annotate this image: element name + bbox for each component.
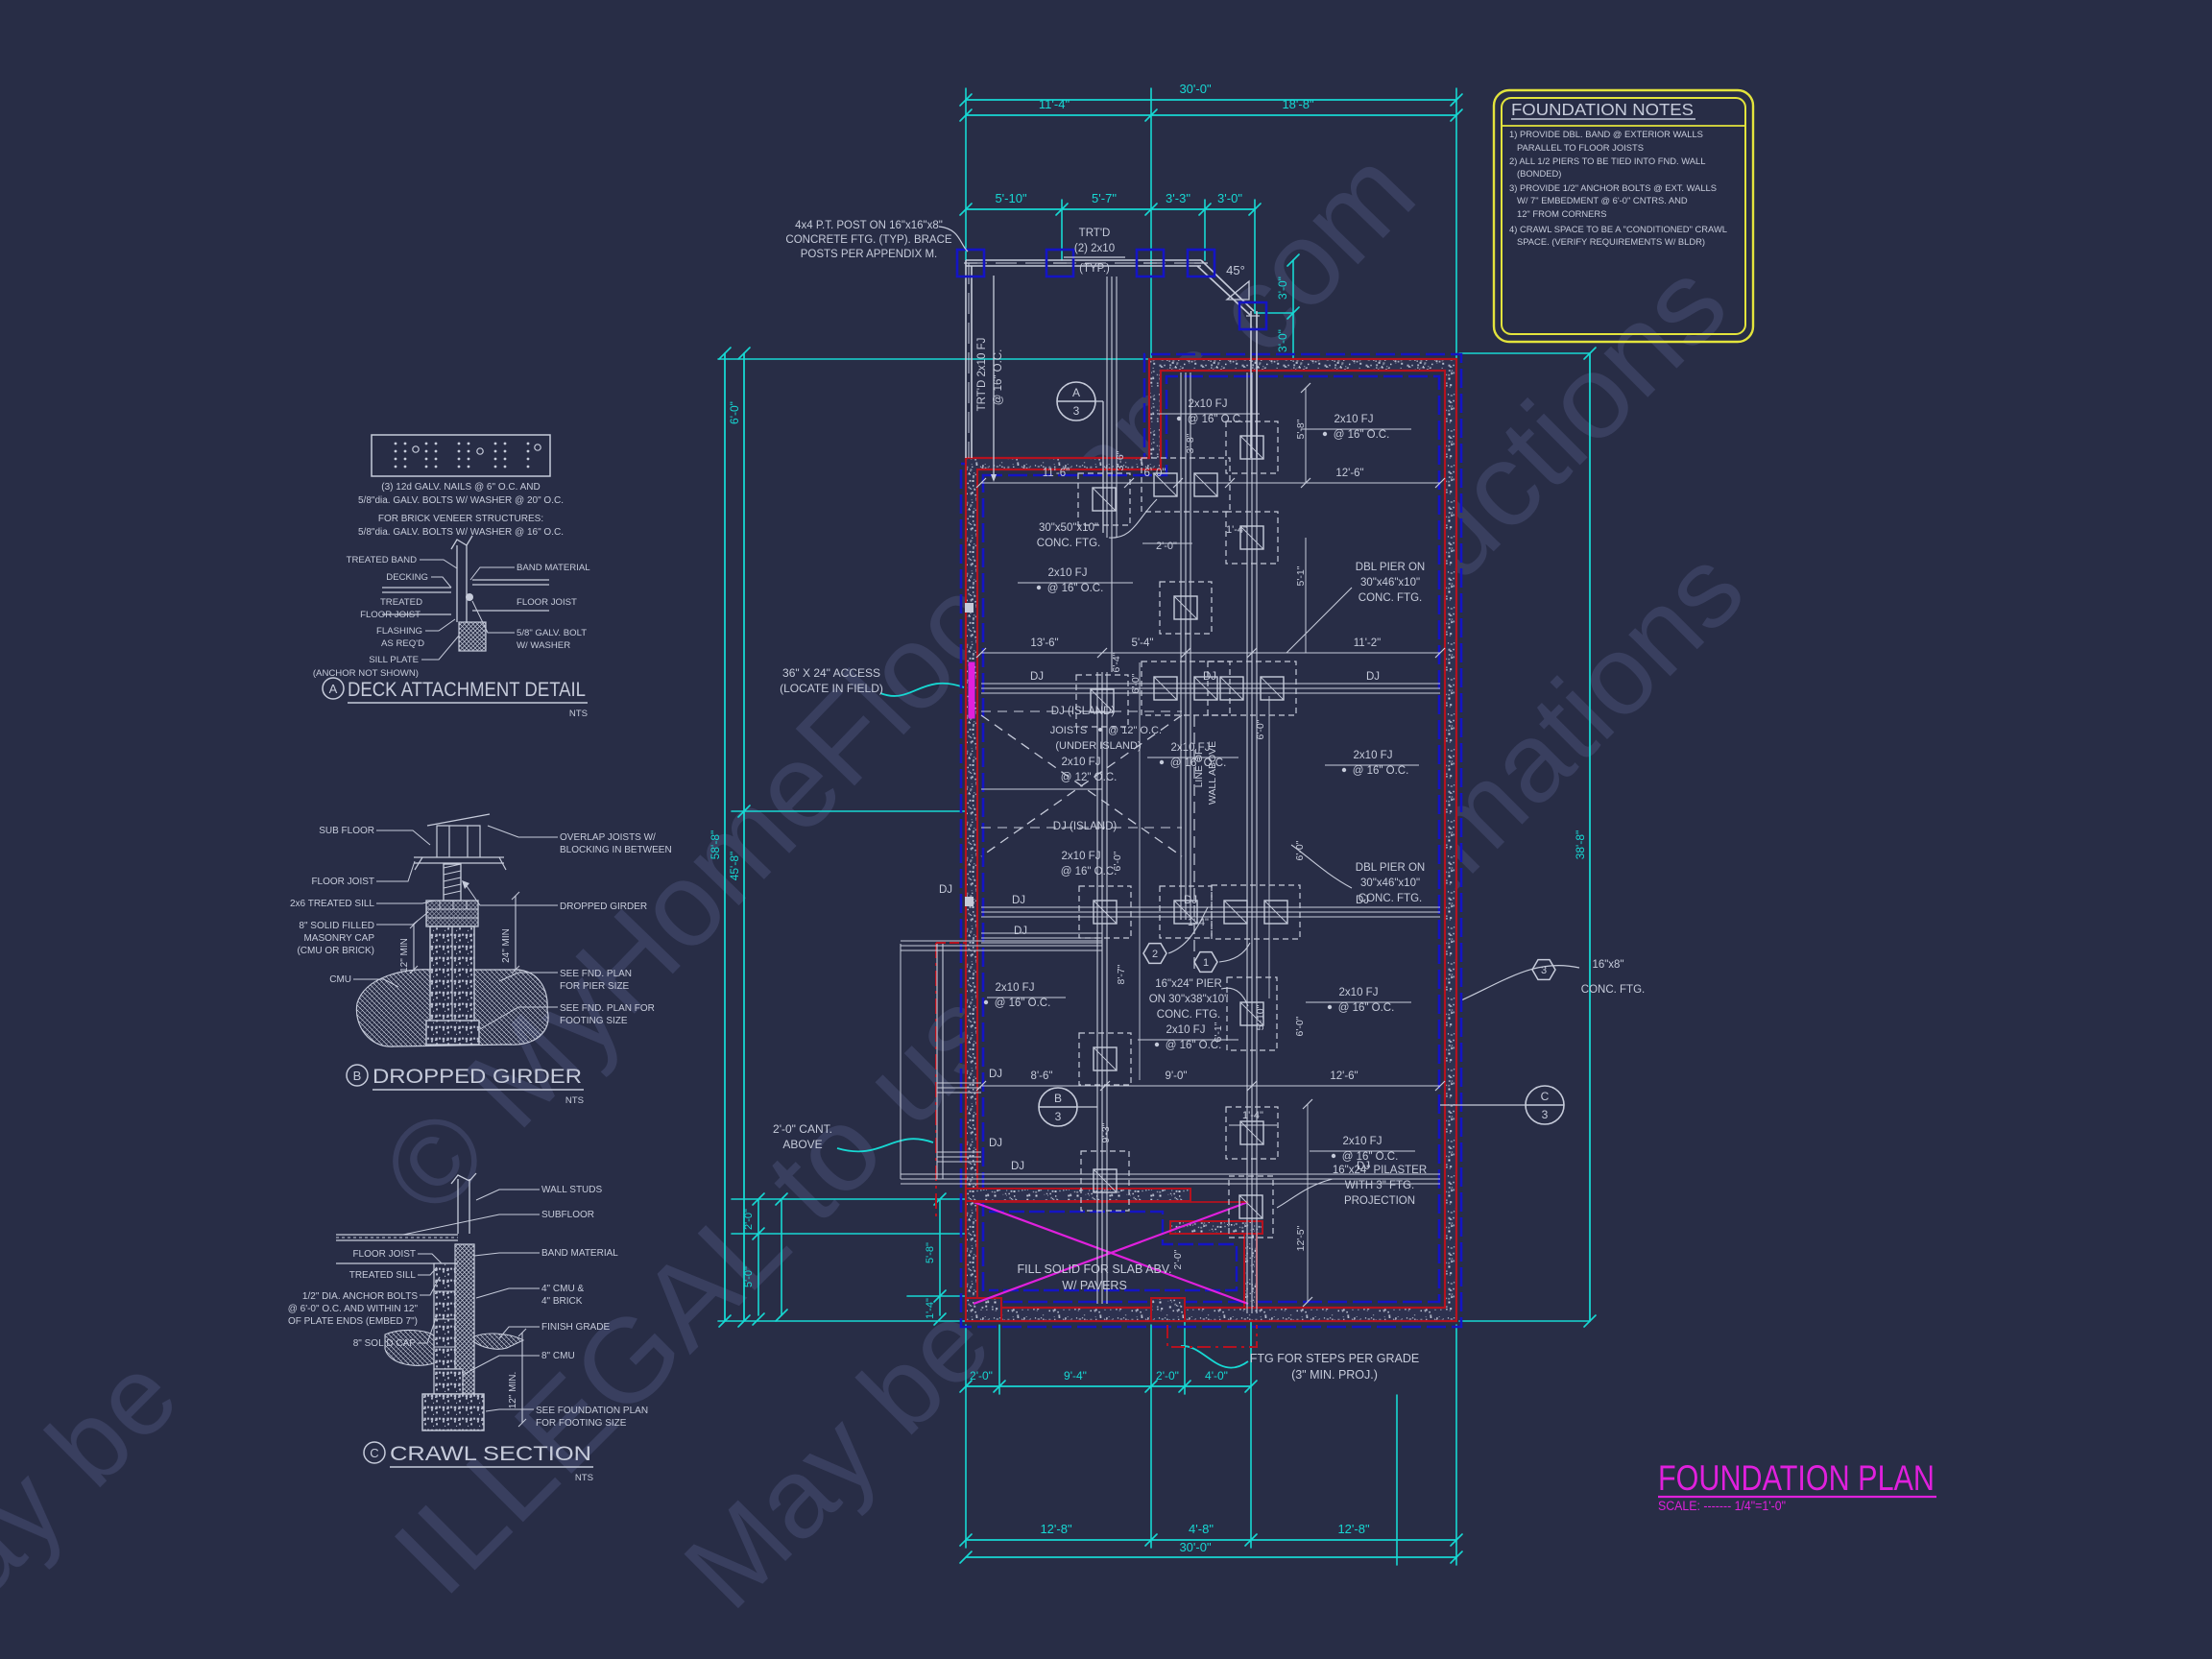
svg-text:2'-0" CANT.: 2'-0" CANT. [773, 1122, 832, 1136]
svg-text:AS REQ'D: AS REQ'D [381, 638, 424, 649]
svg-text:CONC. FTG.: CONC. FTG. [1037, 538, 1100, 549]
svg-text:@ 16" O.C.: @ 16" O.C. [1047, 583, 1104, 594]
svg-text:3: 3 [1073, 404, 1080, 418]
svg-text:FOOTING SIZE: FOOTING SIZE [560, 1016, 628, 1026]
svg-text:3'-8": 3'-8" [1185, 433, 1196, 453]
svg-text:DJ: DJ [989, 1069, 1002, 1080]
svg-text:6'-0": 6'-0" [728, 401, 741, 424]
svg-text:9'-3": 9'-3" [1100, 1122, 1112, 1142]
svg-text:4" BRICK: 4" BRICK [541, 1296, 583, 1307]
svg-text:6'-0": 6'-0" [1294, 840, 1306, 860]
svg-text:2'-0": 2'-0" [1172, 1249, 1184, 1269]
svg-text:4x4 P.T. POST ON 16"x16"x8": 4x4 P.T. POST ON 16"x16"x8" [795, 220, 943, 231]
svg-text:@ 16" O.C.: @ 16" O.C. [1353, 765, 1409, 777]
svg-text:OVERLAP JOISTS W/: OVERLAP JOISTS W/ [560, 832, 656, 843]
svg-text:(UNDER ISLAND): (UNDER ISLAND) [1055, 740, 1141, 752]
svg-text:FLASHING: FLASHING [376, 626, 422, 637]
svg-text:@ 16" O.C.: @ 16" O.C. [1061, 866, 1118, 878]
svg-text:30"x50"x10": 30"x50"x10" [1039, 522, 1098, 534]
svg-text:3'-0": 3'-0" [1276, 276, 1289, 300]
svg-text:5'-1": 5'-1" [1295, 565, 1307, 586]
svg-text:CONCRETE FTG. (TYP). BRACE: CONCRETE FTG. (TYP). BRACE [785, 234, 951, 246]
svg-text:FINISH GRADE: FINISH GRADE [541, 1322, 610, 1333]
svg-text:11'-2": 11'-2" [1354, 637, 1381, 649]
svg-text:3: 3 [1542, 1108, 1549, 1121]
svg-text:FILL SOLID FOR SLAB ABV.: FILL SOLID FOR SLAB ABV. [1018, 1262, 1172, 1276]
svg-text:(3" MIN. PROJ.): (3" MIN. PROJ.) [1291, 1368, 1378, 1382]
svg-text:12'-6": 12'-6" [1335, 468, 1363, 479]
svg-text:58'-8": 58'-8" [709, 830, 722, 860]
svg-text:CONC. FTG.: CONC. FTG. [1358, 592, 1422, 604]
svg-text:5'-10": 5'-10" [995, 191, 1027, 205]
svg-text:A: A [1072, 386, 1080, 399]
svg-text:DJ: DJ [1011, 1161, 1024, 1172]
svg-text:5'-8": 5'-8" [925, 1242, 936, 1263]
svg-text:C: C [370, 1446, 378, 1460]
svg-text:24" MIN: 24" MIN [501, 928, 512, 963]
svg-text:FTG FOR STEPS PER GRADE: FTG FOR STEPS PER GRADE [1250, 1352, 1419, 1365]
svg-text:2x10 FJ: 2x10 FJ [1166, 1024, 1206, 1036]
svg-text:3) PROVIDE 1/2" ANCHOR BOLTS @: 3) PROVIDE 1/2" ANCHOR BOLTS @ EXT. WALL… [1509, 182, 1717, 193]
svg-text:B: B [1054, 1092, 1062, 1105]
svg-text:4'-8": 4'-8" [1189, 1522, 1214, 1536]
svg-text:2x10 FJ: 2x10 FJ [1048, 567, 1088, 579]
svg-text:@ 16" O.C.: @ 16" O.C. [1188, 414, 1244, 425]
svg-text:DJ: DJ [1014, 926, 1027, 937]
svg-text:FOR FOOTING SIZE: FOR FOOTING SIZE [536, 1418, 627, 1429]
svg-text:W/ PAVERS: W/ PAVERS [1062, 1279, 1127, 1292]
svg-text:MASONRY CAP: MASONRY CAP [303, 933, 374, 944]
svg-text:30"x46"x10": 30"x46"x10" [1360, 878, 1420, 889]
svg-text:2x10 FJ: 2x10 FJ [1189, 398, 1228, 410]
svg-text:DJ: DJ [1030, 671, 1044, 683]
svg-text:1'-4": 1'-4" [1226, 524, 1247, 536]
svg-text:TRT'D 2x10 FJ: TRT'D 2x10 FJ [976, 338, 988, 412]
svg-text:(CMU OR BRICK): (CMU OR BRICK) [297, 946, 374, 956]
svg-text:11'-4": 11'-4" [1039, 97, 1070, 111]
svg-text:11'-6": 11'-6" [1043, 468, 1070, 479]
svg-text:CRAWL SECTION: CRAWL SECTION [390, 1443, 591, 1465]
svg-text:SUBFLOOR: SUBFLOOR [541, 1210, 594, 1220]
svg-text:B: B [353, 1069, 362, 1083]
svg-text:12" MIN.: 12" MIN. [508, 1372, 518, 1409]
svg-text:3'-6": 3'-6" [1115, 450, 1126, 470]
svg-text:DJ: DJ [1012, 895, 1025, 906]
svg-text:(2) 2x10: (2) 2x10 [1074, 243, 1115, 254]
svg-text:4" CMU &: 4" CMU & [541, 1284, 584, 1294]
svg-text:DJ: DJ [1366, 671, 1380, 683]
svg-text:DROPPED GIRDER: DROPPED GIRDER [373, 1066, 582, 1088]
svg-text:(BONDED): (BONDED) [1517, 168, 1561, 179]
svg-text:2'-0": 2'-0" [1156, 1369, 1179, 1382]
svg-text:C: C [1541, 1090, 1550, 1103]
svg-text:1: 1 [1203, 957, 1209, 969]
svg-text:ABOVE: ABOVE [782, 1138, 822, 1151]
svg-text:5/8"dia. GALV. BOLTS W/ WASHER: 5/8"dia. GALV. BOLTS W/ WASHER @ 20" O.C… [358, 495, 564, 506]
svg-text:3'-0": 3'-0" [1276, 329, 1289, 352]
svg-text:12'-8": 12'-8" [1337, 1522, 1370, 1536]
svg-text:@ 16" O.C.: @ 16" O.C. [993, 349, 1004, 406]
svg-text:2x10 FJ: 2x10 FJ [1334, 414, 1374, 425]
svg-text:@ 16" O.C.: @ 16" O.C. [995, 998, 1051, 1009]
svg-text:2x6 TREATED SILL: 2x6 TREATED SILL [290, 899, 374, 909]
svg-text:DJ: DJ [939, 884, 952, 896]
svg-text:13'-6": 13'-6" [1030, 637, 1058, 649]
svg-text:1'-4": 1'-4" [1242, 1110, 1263, 1121]
svg-text:FOR BRICK VENEER STRUCTURES:: FOR BRICK VENEER STRUCTURES: [378, 514, 543, 524]
svg-text:30"x46"x10": 30"x46"x10" [1360, 577, 1420, 589]
svg-text:FLOOR JOIST: FLOOR JOIST [360, 610, 421, 620]
svg-text:SPACE. (VERIFY REQUIREMENTS W/: SPACE. (VERIFY REQUIREMENTS W/ BLDR) [1517, 236, 1705, 247]
svg-text:3'-0": 3'-0" [1217, 191, 1242, 205]
svg-text:5'-4": 5'-4" [1132, 637, 1154, 649]
svg-text:2x10 FJ: 2x10 FJ [1062, 851, 1101, 862]
svg-text:6'-4": 6'-4" [1111, 652, 1122, 672]
svg-text:TRT'D: TRT'D [1079, 228, 1111, 239]
svg-text:3'-3": 3'-3" [1166, 191, 1190, 205]
svg-text:16"x24" PIER: 16"x24" PIER [1155, 978, 1222, 990]
svg-text:2x10 FJ: 2x10 FJ [1339, 987, 1379, 998]
svg-text:DECKING: DECKING [386, 572, 428, 583]
svg-text:ON 30"x38"x10": ON 30"x38"x10" [1149, 994, 1229, 1005]
svg-text:8" SOLID FILLED: 8" SOLID FILLED [299, 921, 374, 931]
svg-text:2x10 FJ: 2x10 FJ [1343, 1136, 1382, 1147]
svg-text:9'-4": 9'-4" [1064, 1369, 1087, 1382]
svg-text:8'-6": 8'-6" [1031, 1070, 1053, 1082]
svg-text:(LOCATE IN FIELD): (LOCATE IN FIELD) [780, 682, 883, 695]
svg-text:JOISTS: JOISTS [1050, 725, 1088, 736]
svg-text:CONC. FTG.: CONC. FTG. [1581, 984, 1645, 996]
svg-text:5'-0": 5'-0" [743, 1266, 755, 1287]
svg-text:@ 16" O.C.: @ 16" O.C. [1170, 757, 1227, 769]
svg-text:18'-8": 18'-8" [1282, 97, 1314, 111]
svg-text:POSTS PER APPENDIX M.: POSTS PER APPENDIX M. [801, 249, 938, 260]
svg-text:@ 12" O.C.: @ 12" O.C. [1061, 772, 1118, 783]
svg-text:WITH 3" FTG.: WITH 3" FTG. [1345, 1180, 1414, 1191]
svg-text:DJ (ISLAND): DJ (ISLAND) [1051, 706, 1116, 717]
svg-text:TREATED BAND: TREATED BAND [347, 555, 417, 565]
svg-text:6'-0": 6'-0" [1144, 468, 1166, 479]
svg-text:SUB FLOOR: SUB FLOOR [319, 826, 374, 836]
svg-text:SEE FOUNDATION PLAN: SEE FOUNDATION PLAN [536, 1406, 648, 1416]
svg-text:5'-7": 5'-7" [1092, 191, 1117, 205]
svg-text:5'-10": 5'-10" [1255, 1004, 1266, 1030]
svg-text:(ANCHOR NOT SHOWN): (ANCHOR NOT SHOWN) [313, 668, 419, 679]
svg-text:TREATED: TREATED [380, 597, 422, 608]
svg-text:WALL STUDS: WALL STUDS [541, 1185, 602, 1195]
svg-text:6'-0": 6'-0" [1130, 673, 1142, 693]
svg-text:2) ALL 1/2 PIERS TO BE TIED IN: 2) ALL 1/2 PIERS TO BE TIED INTO FND. WA… [1509, 156, 1705, 166]
svg-text:8" SOLID CAP: 8" SOLID CAP [353, 1338, 417, 1349]
svg-text:1'-4": 1'-4" [1188, 917, 1209, 928]
svg-text:@ 16" O.C.: @ 16" O.C. [1334, 429, 1390, 441]
svg-text:FOUNDATION NOTES: FOUNDATION NOTES [1511, 100, 1694, 119]
svg-text:2'-0": 2'-0" [1156, 541, 1177, 552]
svg-text:DECK ATTACHMENT DETAIL: DECK ATTACHMENT DETAIL [348, 679, 586, 701]
svg-text:2x10 FJ: 2x10 FJ [996, 982, 1035, 994]
svg-text:5/8" GALV. BOLT: 5/8" GALV. BOLT [517, 628, 587, 638]
svg-text:3: 3 [1055, 1110, 1062, 1123]
svg-text:NTS: NTS [575, 1473, 593, 1483]
svg-text:5/8"dia. GALV. BOLTS W/ WASHER: 5/8"dia. GALV. BOLTS W/ WASHER @ 16" O.C… [358, 527, 564, 538]
svg-text:2x10 FJ: 2x10 FJ [1354, 750, 1393, 761]
svg-text:@ 16" O.C.: @ 16" O.C. [1338, 1002, 1395, 1014]
svg-text:1) PROVIDE DBL. BAND @ EXTERIO: 1) PROVIDE DBL. BAND @ EXTERIOR WALLS [1509, 129, 1703, 139]
svg-text:4'-0": 4'-0" [1205, 1369, 1228, 1382]
svg-text:12" FROM CORNERS: 12" FROM CORNERS [1517, 208, 1606, 219]
svg-text:TREATED SILL: TREATED SILL [349, 1270, 417, 1281]
svg-text:(3) 12d GALV. NAILS @ 6" O.C.: (3) 12d GALV. NAILS @ 6" O.C. AND [381, 482, 540, 493]
svg-text:DBL PIER ON: DBL PIER ON [1356, 862, 1425, 874]
svg-text:@ 12" O.C.: @ 12" O.C. [1108, 725, 1162, 736]
svg-text:12'-6": 12'-6" [1330, 1070, 1358, 1082]
svg-text:CMU: CMU [329, 974, 351, 985]
svg-text:SEE FND. PLAN: SEE FND. PLAN [560, 969, 632, 979]
svg-text:1'-4": 1'-4" [925, 1298, 936, 1319]
svg-text:6'-0": 6'-0" [1294, 1016, 1306, 1036]
svg-text:12'-8": 12'-8" [1040, 1522, 1072, 1536]
svg-text:BAND MATERIAL: BAND MATERIAL [541, 1248, 618, 1259]
svg-text:BAND MATERIAL: BAND MATERIAL [517, 563, 590, 573]
svg-text:8'-7": 8'-7" [1116, 964, 1127, 984]
svg-text:BLOCKING IN BETWEEN: BLOCKING IN BETWEEN [560, 845, 672, 855]
svg-text:PROJECTION: PROJECTION [1344, 1195, 1415, 1207]
svg-text:2x10 FJ: 2x10 FJ [1062, 757, 1101, 768]
svg-text:FLOOR JOIST: FLOOR JOIST [352, 1249, 416, 1260]
svg-text:2'-0": 2'-0" [970, 1369, 993, 1382]
svg-text:NTS: NTS [569, 709, 588, 719]
svg-text:2: 2 [1152, 949, 1158, 960]
svg-text:FOR PIER SIZE: FOR PIER SIZE [560, 981, 630, 992]
svg-text:DBL PIER ON: DBL PIER ON [1356, 562, 1425, 573]
svg-text:30'-0": 30'-0" [1179, 82, 1212, 96]
svg-text:A: A [329, 682, 338, 696]
svg-text:W/ WASHER: W/ WASHER [517, 640, 570, 651]
svg-text:3: 3 [1541, 965, 1547, 976]
svg-text:W/ 7" EMBEDMENT @ 6'-0" CNTRS.: W/ 7" EMBEDMENT @ 6'-0" CNTRS. AND [1517, 195, 1688, 205]
svg-text:9'-0": 9'-0" [1166, 1070, 1188, 1082]
svg-text:NTS: NTS [565, 1095, 584, 1106]
svg-text:2x10 FJ: 2x10 FJ [1171, 742, 1211, 754]
svg-text:SILL PLATE: SILL PLATE [369, 655, 419, 665]
svg-text:SCALE: ------- 1/4"=1'-0": SCALE: ------- 1/4"=1'-0" [1658, 1499, 1786, 1513]
svg-text:OF PLATE ENDS (EMBED 7"): OF PLATE ENDS (EMBED 7") [288, 1316, 418, 1327]
svg-text:SEE FND. PLAN FOR: SEE FND. PLAN FOR [560, 1003, 655, 1014]
svg-text:DJ: DJ [1203, 671, 1216, 683]
svg-text:2'-0": 2'-0" [743, 1209, 755, 1230]
svg-text:8" CMU: 8" CMU [541, 1351, 575, 1361]
svg-text:(TYP.): (TYP.) [1079, 263, 1110, 275]
svg-text:1/2" DIA. ANCHOR BOLTS: 1/2" DIA. ANCHOR BOLTS [302, 1291, 418, 1302]
svg-text:@ 6'-0" O.C. AND WITHIN 12": @ 6'-0" O.C. AND WITHIN 12" [288, 1304, 419, 1314]
svg-text:38'-8": 38'-8" [1574, 830, 1587, 860]
svg-text:DROPPED GIRDER: DROPPED GIRDER [560, 902, 647, 912]
svg-text:16"x8": 16"x8" [1592, 959, 1623, 971]
svg-text:FOUNDATION PLAN: FOUNDATION PLAN [1658, 1458, 1935, 1498]
svg-text:45'-8": 45'-8" [728, 852, 741, 881]
svg-text:4) CRAWL SPACE TO BE A "CONDIT: 4) CRAWL SPACE TO BE A "CONDITIONED" CRA… [1509, 224, 1727, 234]
svg-text:DJ (ISLAND): DJ (ISLAND) [1053, 821, 1118, 832]
svg-text:36" X 24" ACCESS: 36" X 24" ACCESS [782, 666, 880, 680]
svg-text:PARALLEL TO FLOOR JOISTS: PARALLEL TO FLOOR JOISTS [1517, 142, 1644, 153]
svg-text:6'-0": 6'-0" [1255, 719, 1266, 739]
svg-text:FLOOR JOIST: FLOOR JOIST [311, 877, 374, 887]
svg-text:30'-0": 30'-0" [1179, 1540, 1212, 1554]
svg-text:DJ: DJ [1184, 895, 1197, 906]
svg-text:CONC. FTG.: CONC. FTG. [1358, 893, 1422, 904]
svg-text:FLOOR JOIST: FLOOR JOIST [517, 597, 577, 608]
svg-text:DJ: DJ [989, 1138, 1002, 1149]
svg-text:12" MIN: 12" MIN [399, 938, 410, 973]
svg-text:45°: 45° [1226, 263, 1245, 277]
svg-text:CONC. FTG.: CONC. FTG. [1157, 1009, 1220, 1021]
svg-text:@ 16" O.C.: @ 16" O.C. [1166, 1040, 1222, 1051]
svg-text:16"x24" PILASTER: 16"x24" PILASTER [1333, 1165, 1427, 1176]
svg-text:12'-5": 12'-5" [1295, 1225, 1307, 1251]
